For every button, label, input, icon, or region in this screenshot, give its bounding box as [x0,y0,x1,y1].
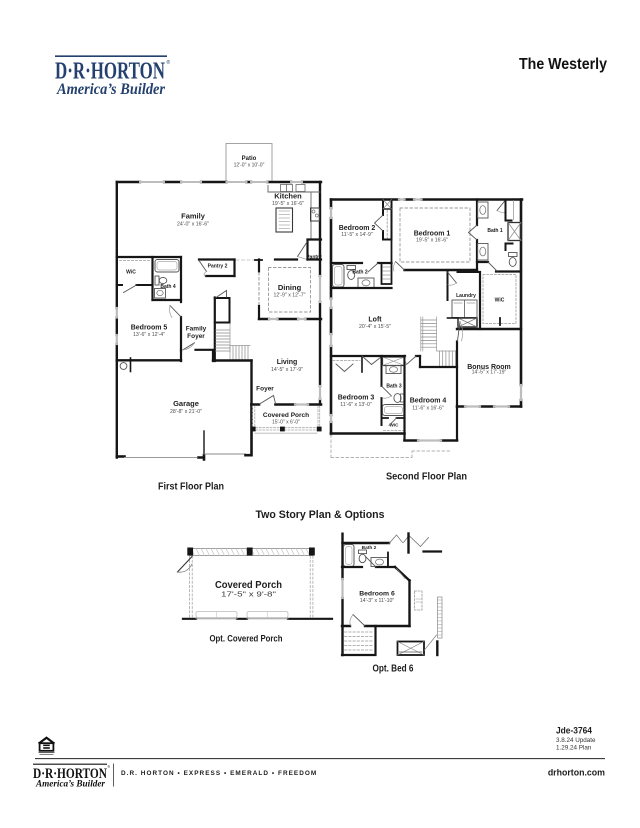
svg-text:WiC: WiC [495,298,505,304]
svg-text:Two Story Plan & Options: Two Story Plan & Options [256,509,385,521]
svg-text:Garage: Garage [173,399,199,408]
svg-text:Opt. Covered Porch: Opt. Covered Porch [210,633,283,644]
svg-text:Patio: Patio [242,156,257,162]
svg-text:Foyer: Foyer [187,333,205,340]
svg-text:Jde-3764: Jde-3764 [556,726,593,736]
svg-text:Bath 2: Bath 2 [352,270,368,276]
svg-text:Bedroom 1: Bedroom 1 [414,231,451,238]
svg-text:13'-6" x 12'-4": 13'-6" x 12'-4" [133,332,165,338]
svg-text:17'-5" x 9'-8": 17'-5" x 9'-8" [221,590,276,599]
svg-text:15'-0" x 6'-0": 15'-0" x 6'-0" [272,420,300,426]
svg-text:®: ® [167,59,171,66]
svg-text:Laundry: Laundry [456,293,476,299]
svg-text:First Floor Plan: First Floor Plan [158,482,224,493]
svg-text:11'-5" x 14'-9": 11'-5" x 14'-9" [341,232,373,238]
svg-text:Bath 2: Bath 2 [362,545,377,551]
svg-text:D.R. HORTON • EXPRESS • EMERAL: D.R. HORTON • EXPRESS • EMERALD • FREEDO… [121,770,317,777]
svg-text:®: ® [108,765,111,769]
svg-text:Bedroom 4: Bedroom 4 [410,398,447,405]
svg-text:28'-8" x 21'-0": 28'-8" x 21'-0" [170,409,202,415]
svg-text:12'-0" x 10'-0": 12'-0" x 10'-0" [234,163,265,169]
svg-text:Foyer: Foyer [256,386,274,393]
svg-text:11'-6" x 16'-6": 11'-6" x 16'-6" [412,406,444,412]
svg-text:Kitchen: Kitchen [274,192,302,201]
svg-text:Bath 3: Bath 3 [386,384,402,390]
svg-text:Pantry 2: Pantry 2 [208,264,228,270]
svg-text:Bath 1: Bath 1 [487,228,503,234]
svg-text:Opt. Bed 6: Opt. Bed 6 [373,664,414,675]
svg-text:Bath 4: Bath 4 [160,284,176,290]
svg-text:Family: Family [186,326,207,333]
svg-text:WiC: WiC [126,270,136,276]
svg-text:24'-0" x 16'-6": 24'-0" x 16'-6" [177,222,209,228]
svg-text:Second Floor Plan: Second Floor Plan [386,472,467,483]
svg-text:20'-4" x 15'-5": 20'-4" x 15'-5" [359,324,391,330]
svg-text:Family: Family [181,212,206,221]
svg-text:14'-5" x 17'-19": 14'-5" x 17'-19" [472,370,507,376]
svg-text:19'-5" x 16'-6": 19'-5" x 16'-6" [272,201,304,207]
svg-text:The Westerly: The Westerly [519,56,607,73]
svg-text:1.29.24 Plan: 1.29.24 Plan [556,745,592,752]
svg-text:America’s Builder: America’s Builder [56,81,166,98]
svg-text:Bedroom 5: Bedroom 5 [131,325,168,332]
svg-text:Bedroom 3: Bedroom 3 [338,395,375,402]
svg-text:3.8.24 Update: 3.8.24 Update [556,737,596,744]
svg-text:Bedroom 6: Bedroom 6 [359,591,395,598]
svg-text:14'-3" x 11'-10": 14'-3" x 11'-10" [360,598,395,604]
svg-text:Dining: Dining [278,283,302,292]
svg-text:19'-5" x 16'-6": 19'-5" x 16'-6" [416,238,448,244]
svg-text:drhorton.com: drhorton.com [548,768,605,778]
svg-text:12'-9" x 12'-7": 12'-9" x 12'-7" [274,293,306,299]
svg-text:Living: Living [277,359,298,366]
svg-text:11'-6" x 13'-0": 11'-6" x 13'-0" [340,402,372,408]
svg-text:Loft: Loft [368,317,382,324]
svg-text:America’s Builder: America’s Builder [35,780,105,790]
svg-text:Covered Porch: Covered Porch [263,412,309,419]
svg-text:WiC: WiC [390,423,400,428]
svg-text:14'-5" x 17'-9": 14'-5" x 17'-9" [271,367,303,373]
